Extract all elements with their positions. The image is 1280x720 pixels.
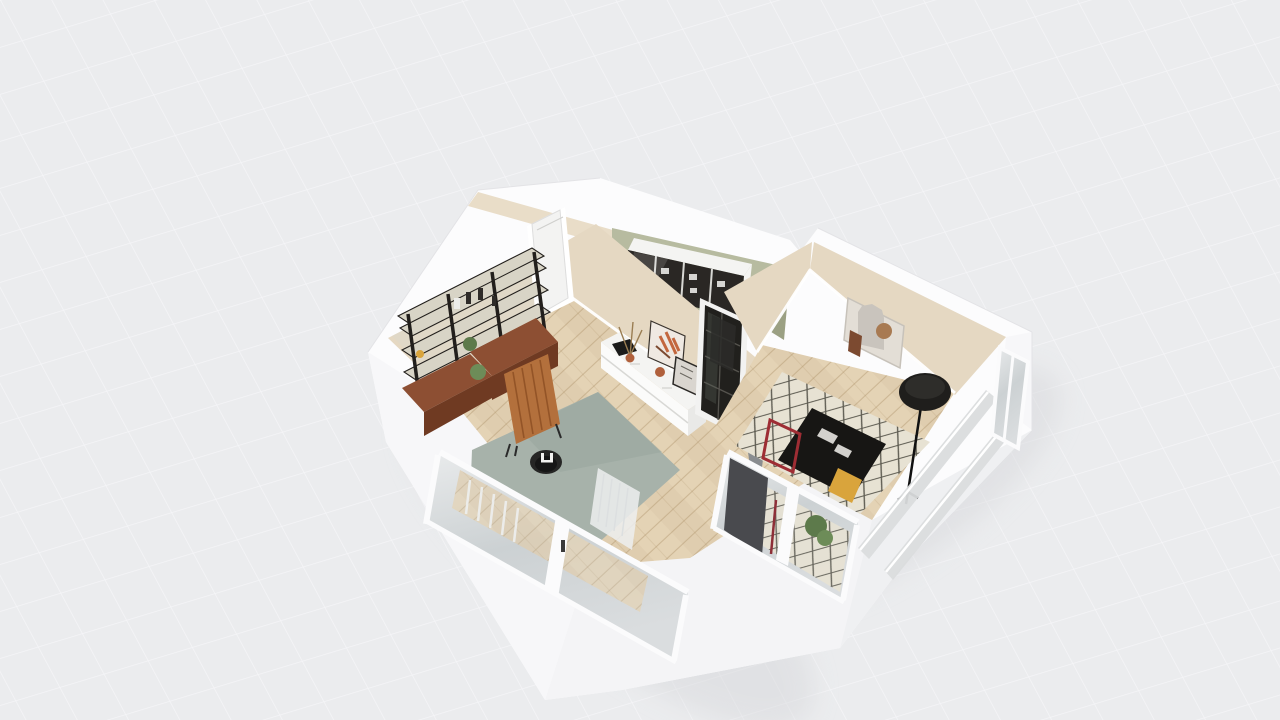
- vase: [655, 367, 665, 377]
- balcony-plant: [817, 530, 833, 546]
- credenza-plant: [470, 364, 486, 380]
- lamp-shade-top: [905, 375, 945, 399]
- canvas-3d-viewport[interactable]: [0, 0, 1280, 720]
- shelf-vase: [454, 298, 460, 309]
- floor-plan-render: [0, 0, 1280, 720]
- art-tan-circle: [876, 323, 892, 339]
- shelf-plant: [463, 337, 477, 351]
- door-handle: [561, 540, 565, 552]
- side-table[interactable]: [530, 450, 562, 474]
- shelf-yellow-vase: [416, 350, 424, 358]
- side-table-inner: [535, 456, 557, 472]
- dried-plant-pot: [626, 354, 635, 363]
